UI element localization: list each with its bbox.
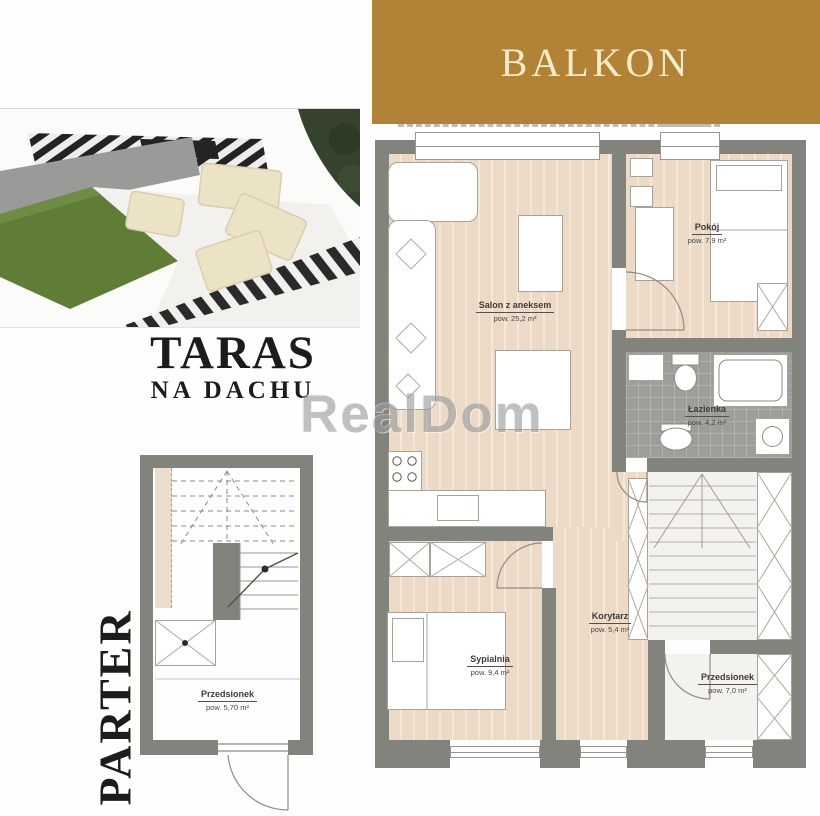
label-sypialnia: Sypialnia pow. 9,4 m² bbox=[435, 648, 545, 677]
wall-przedsionek-left bbox=[648, 640, 665, 740]
label-parter-przedsionek-area: pow. 5,70 m² bbox=[155, 703, 300, 712]
pokoj-wardrobe bbox=[757, 283, 788, 331]
label-korytarz: Korytarz pow. 5,4 m² bbox=[555, 605, 665, 634]
label-przedsionek-name: Przedsionek bbox=[698, 672, 757, 685]
bed-pokoj-pillow bbox=[716, 165, 782, 191]
coffee-table bbox=[518, 215, 563, 292]
bed-sypialnia-pillow bbox=[392, 618, 424, 662]
balcony-banner: BALKON bbox=[372, 0, 820, 124]
window-pokoj bbox=[660, 132, 720, 160]
wall-pokoj-bottom bbox=[626, 338, 792, 352]
parter-door bbox=[218, 744, 288, 810]
terrace-caption-title: TARAS bbox=[108, 330, 358, 377]
ground-floor-plan: Przedsionek pow. 5,70 m² bbox=[140, 455, 320, 813]
label-lazienka-area: pow. 4,2 m² bbox=[647, 418, 767, 427]
label-lazienka-name: Łazienka bbox=[685, 404, 729, 417]
label-lazienka: Łazienka pow. 4,2 m² bbox=[647, 398, 767, 427]
label-parter-przedsionek-name: Przedsionek bbox=[198, 689, 257, 702]
wall-segment bbox=[375, 740, 450, 768]
sypialnia-wardrobe-1 bbox=[389, 542, 430, 577]
parter-skylight bbox=[155, 620, 216, 666]
watermark: RealDom bbox=[300, 384, 544, 445]
wall-right bbox=[792, 140, 806, 768]
wall-segment bbox=[627, 740, 705, 768]
label-pokoj-name: Pokój bbox=[692, 222, 723, 235]
parter-wall-top bbox=[140, 455, 313, 468]
wall-przedsionek-top bbox=[710, 640, 792, 654]
parter-wall-bottom-left bbox=[140, 740, 218, 755]
label-parter-przedsionek: Przedsionek pow. 5,70 m² bbox=[155, 683, 300, 712]
pokoj-cabinet-1 bbox=[630, 158, 653, 177]
label-salon-area: pow. 25,2 m² bbox=[460, 314, 570, 323]
wall-divider-lower bbox=[612, 330, 626, 472]
sypialnia-wardrobe-2 bbox=[430, 542, 486, 577]
parter-roof-strip bbox=[155, 468, 172, 608]
wall-segment bbox=[540, 740, 580, 768]
wall-segment bbox=[600, 140, 660, 154]
parter-stair-newel bbox=[213, 543, 240, 620]
bath-shelf bbox=[628, 354, 664, 381]
stairs-wardrobe bbox=[757, 472, 792, 640]
label-sypialnia-name: Sypialnia bbox=[467, 654, 513, 667]
terrace-render bbox=[0, 108, 360, 328]
kitchen-sink bbox=[437, 495, 479, 521]
stove bbox=[388, 451, 422, 491]
window-przedsionek bbox=[705, 746, 753, 758]
label-pokoj-area: pow. 7,9 m² bbox=[652, 236, 762, 245]
label-pokoj: Pokój pow. 7,9 m² bbox=[652, 216, 762, 245]
parter-wall-left bbox=[140, 455, 153, 755]
label-przedsionek: Przedsionek pow. 7,0 m² bbox=[670, 666, 785, 695]
wall-segment bbox=[753, 740, 806, 768]
label-salon: Salon z aneksem pow. 25,2 m² bbox=[460, 294, 570, 323]
label-korytarz-area: pow. 5,4 m² bbox=[555, 625, 665, 634]
pokoj-cabinet-2 bbox=[630, 186, 653, 207]
balcony-label: BALKON bbox=[501, 39, 692, 86]
label-korytarz-name: Korytarz bbox=[589, 611, 632, 624]
parter-wall-bottom-right bbox=[288, 740, 313, 755]
window-korytarz bbox=[580, 746, 627, 758]
listing-image: BALKON bbox=[0, 0, 820, 816]
parter-wall-right bbox=[300, 455, 313, 740]
window-sypialnia bbox=[450, 746, 540, 758]
sofa-side bbox=[388, 220, 436, 410]
window-salon bbox=[415, 132, 600, 160]
sofa-top bbox=[388, 162, 478, 222]
label-przedsionek-area: pow. 7,0 m² bbox=[670, 686, 785, 695]
wall-divider-upper bbox=[612, 140, 626, 268]
wall-salon-bottom bbox=[375, 527, 553, 541]
terrace-render-drawing bbox=[0, 109, 360, 327]
wall-lazienka-bottom bbox=[647, 458, 792, 472]
label-salon-name: Salon z aneksem bbox=[476, 300, 555, 313]
label-sypialnia-area: pow. 9,4 m² bbox=[435, 668, 545, 677]
